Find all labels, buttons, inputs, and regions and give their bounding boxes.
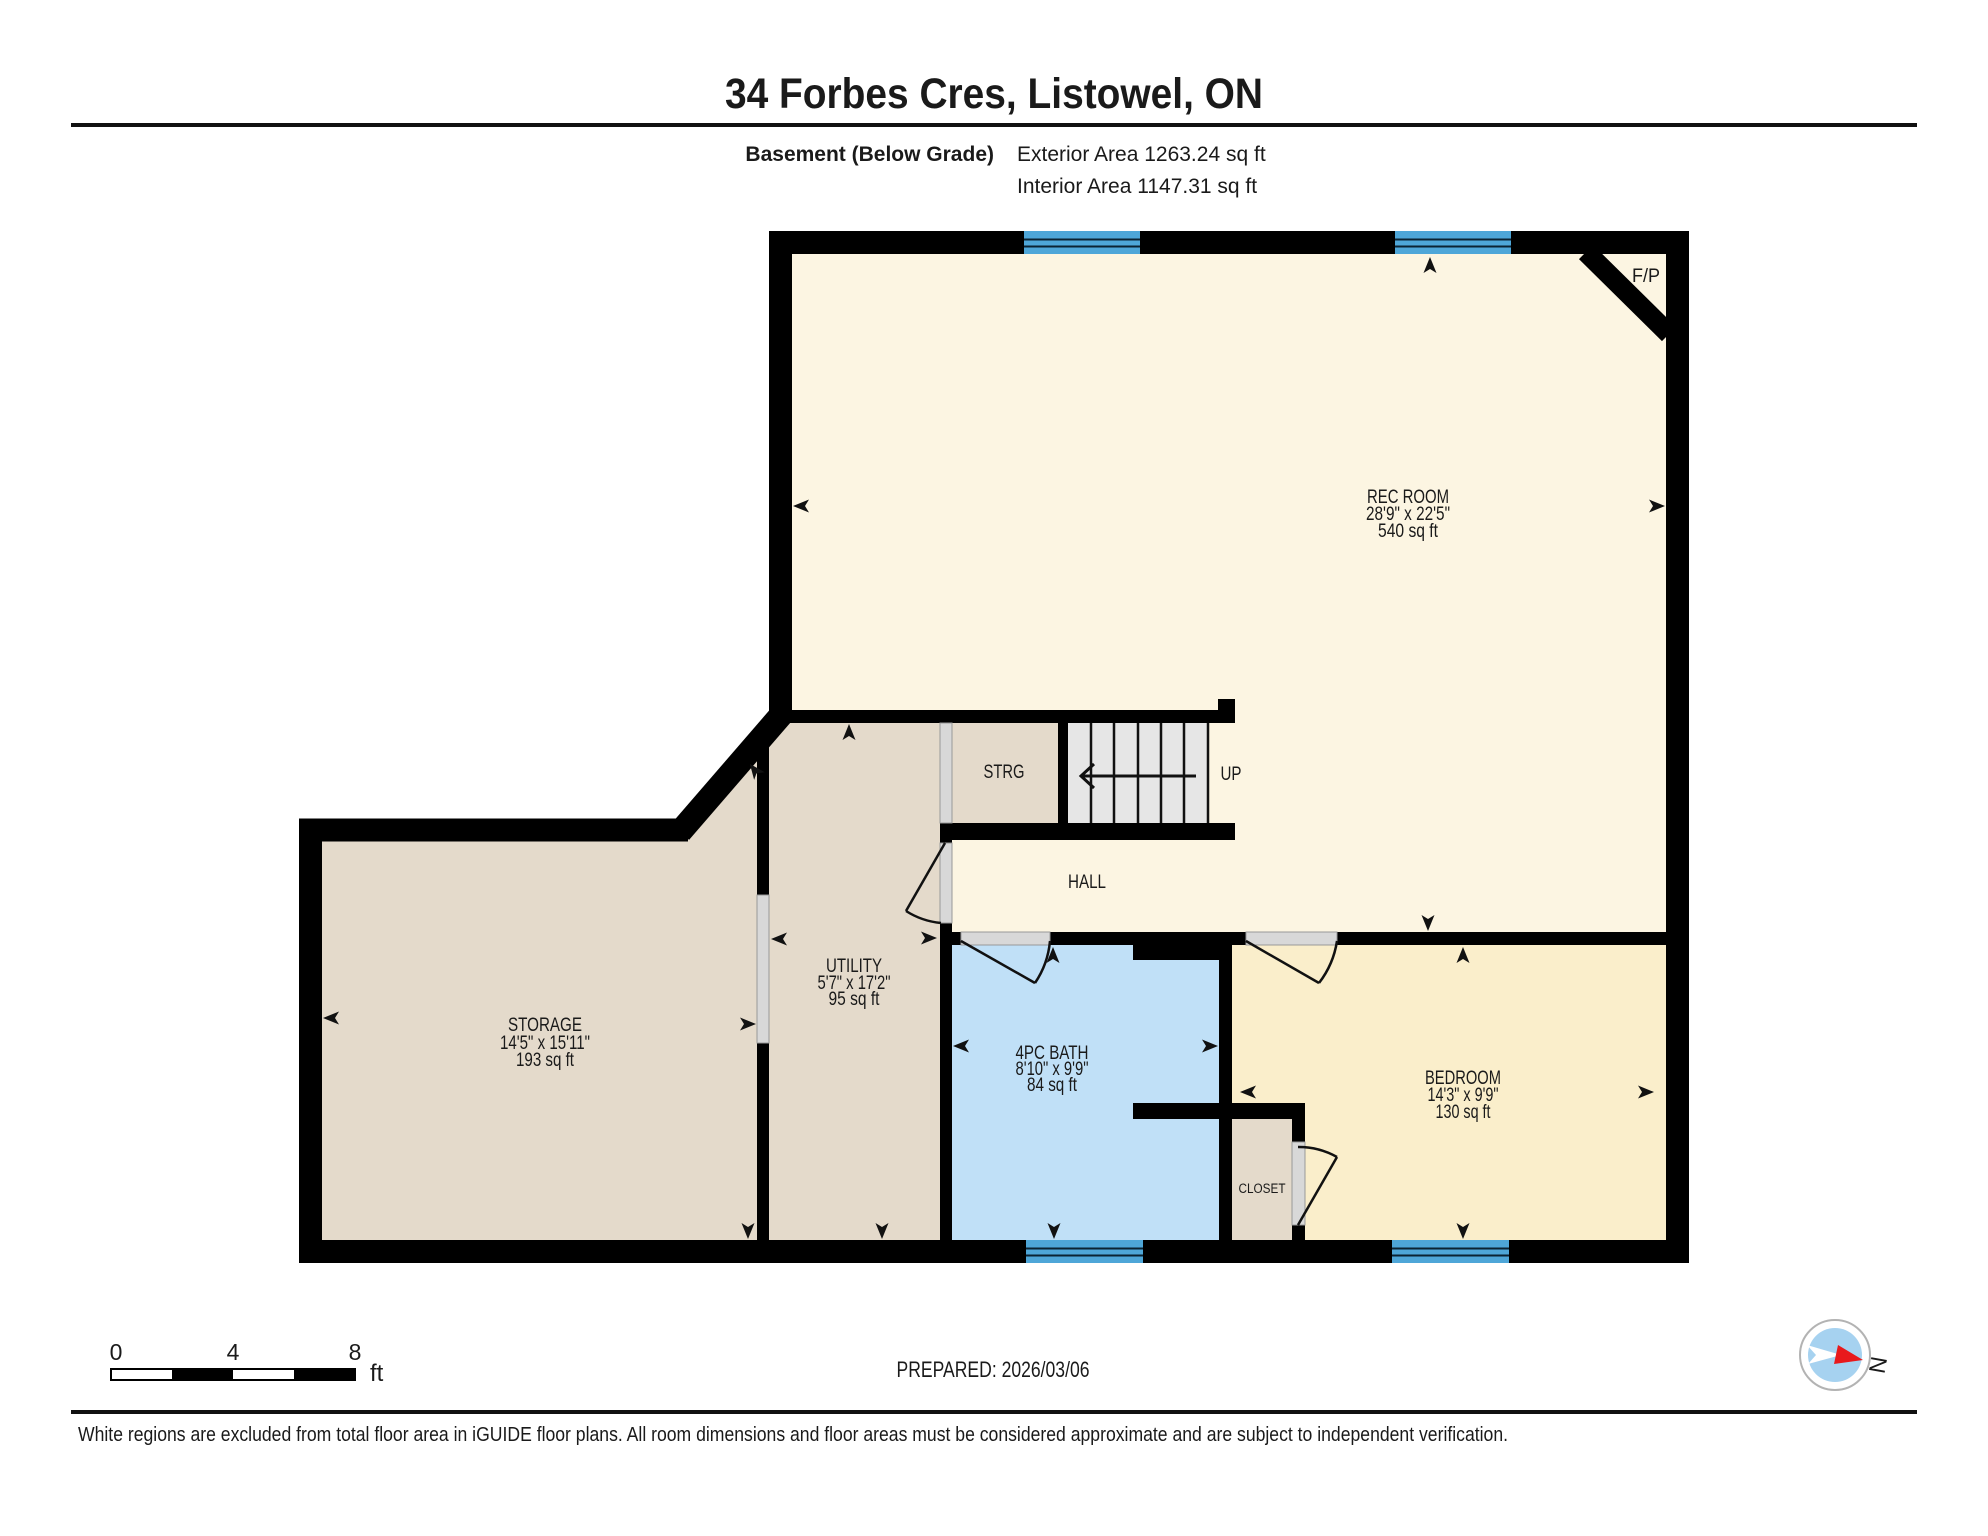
svg-text:STRG: STRG	[984, 762, 1025, 783]
svg-text:Basement (Below Grade): Basement (Below Grade)	[745, 143, 994, 166]
svg-text:540 sq ft: 540 sq ft	[1378, 521, 1439, 542]
svg-text:34 Forbes Cres, Listowel, ON: 34 Forbes Cres, Listowel, ON	[725, 70, 1263, 118]
svg-text:95 sq ft: 95 sq ft	[829, 989, 881, 1010]
svg-text:4: 4	[227, 1339, 240, 1365]
svg-text:Interior Area 1147.31 sq ft: Interior Area 1147.31 sq ft	[1017, 175, 1257, 198]
svg-text:8: 8	[349, 1339, 362, 1365]
svg-text:F/P: F/P	[1632, 266, 1660, 287]
svg-text:HALL: HALL	[1068, 872, 1106, 893]
svg-text:PREPARED: 2026/03/06: PREPARED: 2026/03/06	[897, 1357, 1090, 1382]
svg-text:CLOSET: CLOSET	[1239, 1181, 1286, 1196]
svg-text:130 sq ft: 130 sq ft	[1436, 1102, 1492, 1123]
svg-text:N: N	[1864, 1355, 1892, 1376]
svg-text:UP: UP	[1221, 764, 1242, 785]
svg-text:Exterior Area 1263.24 sq ft: Exterior Area 1263.24 sq ft	[1017, 143, 1266, 166]
svg-text:193 sq ft: 193 sq ft	[516, 1050, 575, 1071]
svg-text:84 sq ft: 84 sq ft	[1027, 1075, 1078, 1096]
svg-text:0: 0	[110, 1339, 123, 1365]
svg-text:ft: ft	[370, 1360, 384, 1387]
svg-text:White regions are excluded fro: White regions are excluded from total fl…	[78, 1424, 1508, 1446]
